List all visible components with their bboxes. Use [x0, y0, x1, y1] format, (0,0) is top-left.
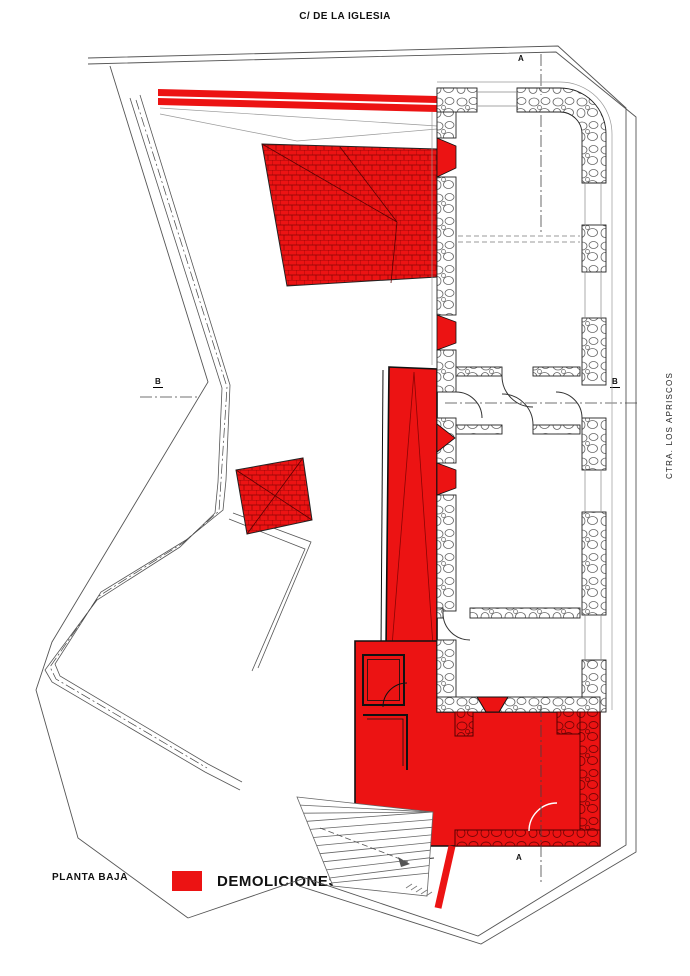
demolition-zone [355, 367, 600, 846]
plan-sheet: C/ DE LA IGLESIA CTRA. LOS APRISCOS PLAN… [0, 0, 690, 976]
lane-and-courtyard-walls [45, 95, 311, 790]
floor-plan-drawing [0, 0, 690, 976]
exterior-stairs [297, 797, 433, 896]
demolition-roof-small [236, 458, 312, 534]
demolition-top-wall-strip [158, 89, 437, 141]
demolition-wall-stub [438, 846, 452, 908]
kept-room [456, 618, 580, 697]
demolition-roof-large [262, 144, 437, 286]
